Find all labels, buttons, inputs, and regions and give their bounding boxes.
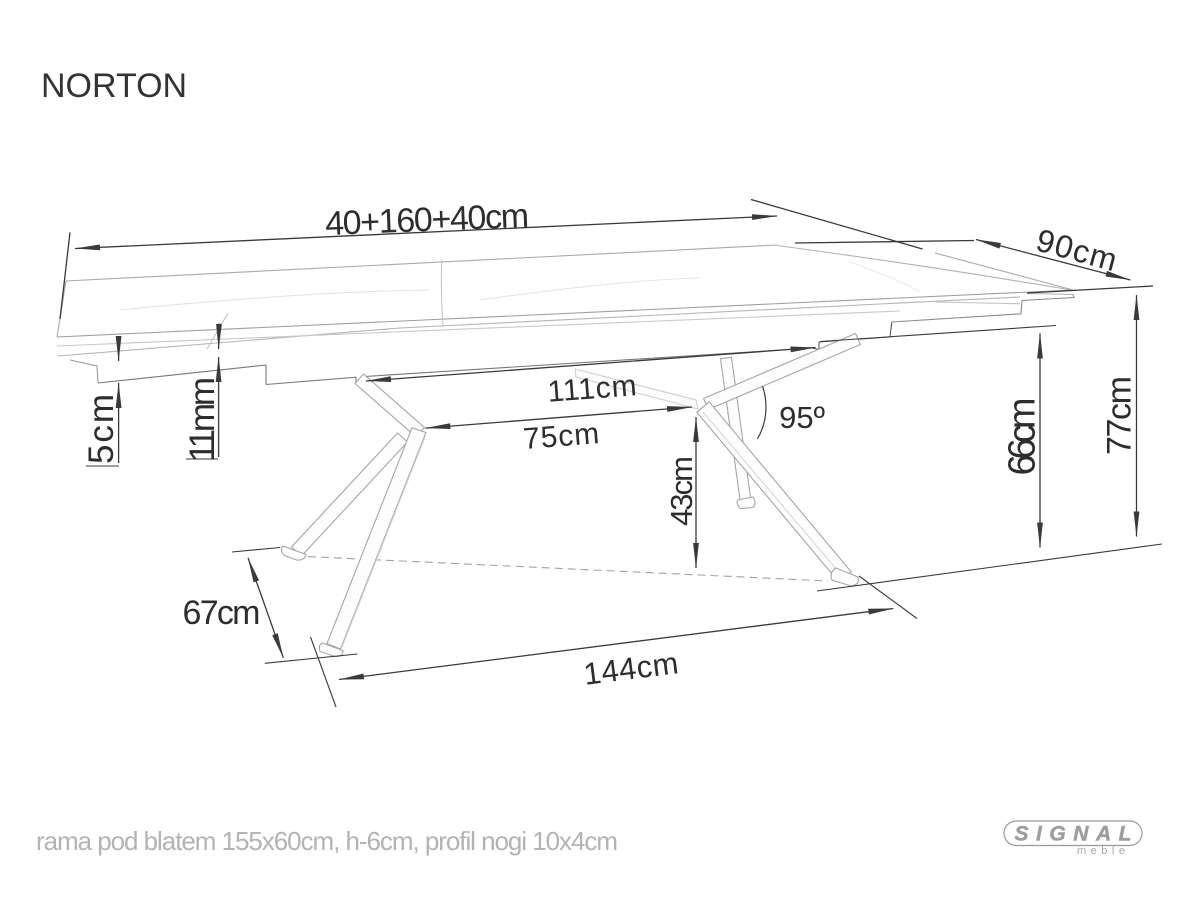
svg-text:67cm: 67cm <box>183 594 261 632</box>
svg-text:90cm: 90cm <box>1032 222 1121 278</box>
svg-text:meble: meble <box>1077 845 1131 857</box>
svg-text:43cm: 43cm <box>664 456 699 526</box>
svg-text:NORTON: NORTON <box>41 67 187 105</box>
svg-text:75cm: 75cm <box>522 417 600 456</box>
svg-text:144cm: 144cm <box>582 645 681 692</box>
svg-text:77cm: 77cm <box>1101 376 1139 455</box>
svg-text:11mm: 11mm <box>183 377 222 462</box>
svg-text:95º: 95º <box>779 400 825 435</box>
svg-text:40+160+40cm: 40+160+40cm <box>324 197 529 243</box>
svg-text:66cm: 66cm <box>1002 398 1044 476</box>
svg-text:rama pod blatem 155x60cm, h-6c: rama pod blatem 155x60cm, h-6cm, profil … <box>36 826 618 856</box>
svg-text:5cm: 5cm <box>82 394 121 464</box>
svg-text:111cm: 111cm <box>546 369 637 409</box>
svg-text:SIGNAL: SIGNAL <box>1015 823 1132 846</box>
